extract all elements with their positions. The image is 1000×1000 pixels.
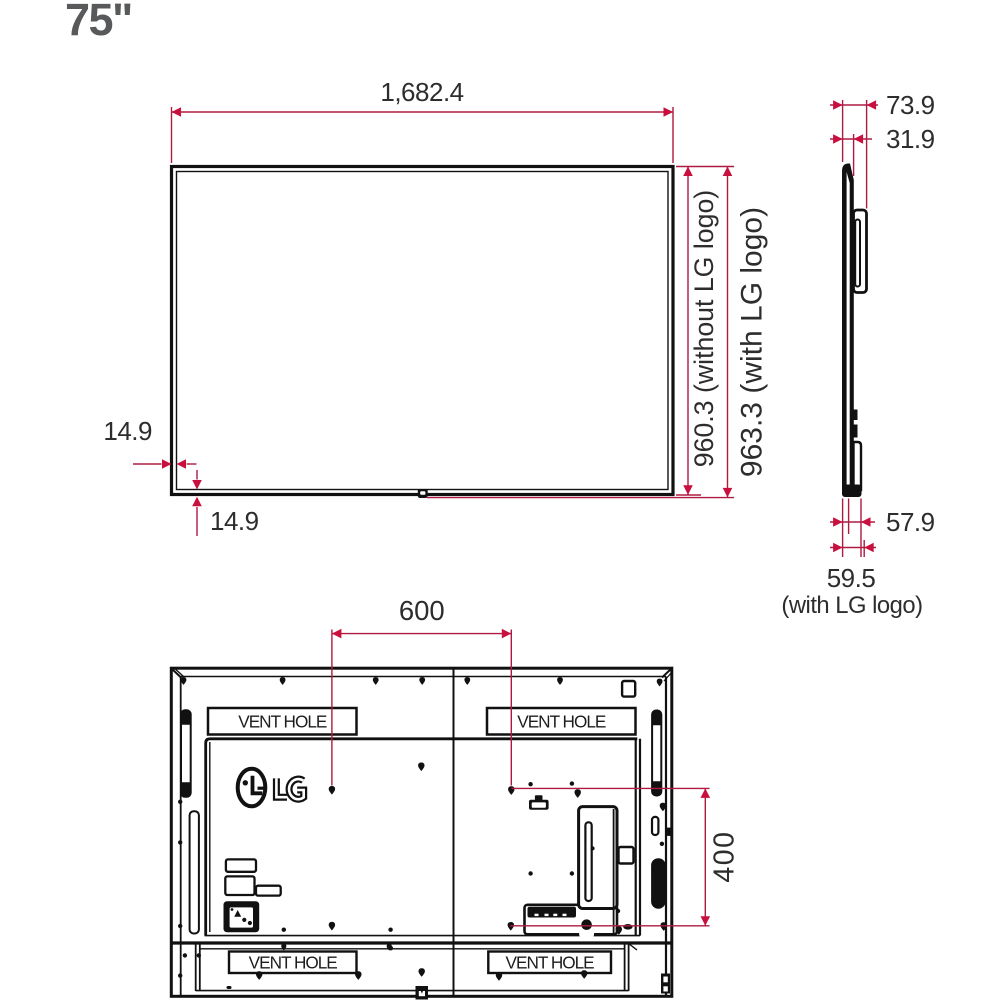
svg-text:600: 600 [399,595,445,626]
svg-text:1,682.4: 1,682.4 [380,77,463,107]
svg-text:(with LG logo): (with LG logo) [781,592,922,619]
svg-text:VENT HOLE: VENT HOLE [249,952,338,972]
svg-text:75": 75" [65,0,132,45]
svg-text:14.9: 14.9 [103,416,152,446]
svg-text:VENT HOLE: VENT HOLE [238,712,327,732]
svg-text:73.9: 73.9 [886,90,935,120]
svg-text:59.5: 59.5 [827,563,876,593]
svg-text:57.9: 57.9 [886,507,935,537]
svg-text:VENT HOLE: VENT HOLE [517,712,606,732]
svg-text:960.3 (without LG logo): 960.3 (without LG logo) [689,190,719,467]
svg-text:VENT HOLE: VENT HOLE [506,952,595,972]
svg-text:14.9: 14.9 [210,506,259,536]
svg-text:31.9: 31.9 [886,124,935,154]
svg-text:963.3 (with LG logo): 963.3 (with LG logo) [736,207,769,477]
svg-text:400: 400 [709,831,741,883]
